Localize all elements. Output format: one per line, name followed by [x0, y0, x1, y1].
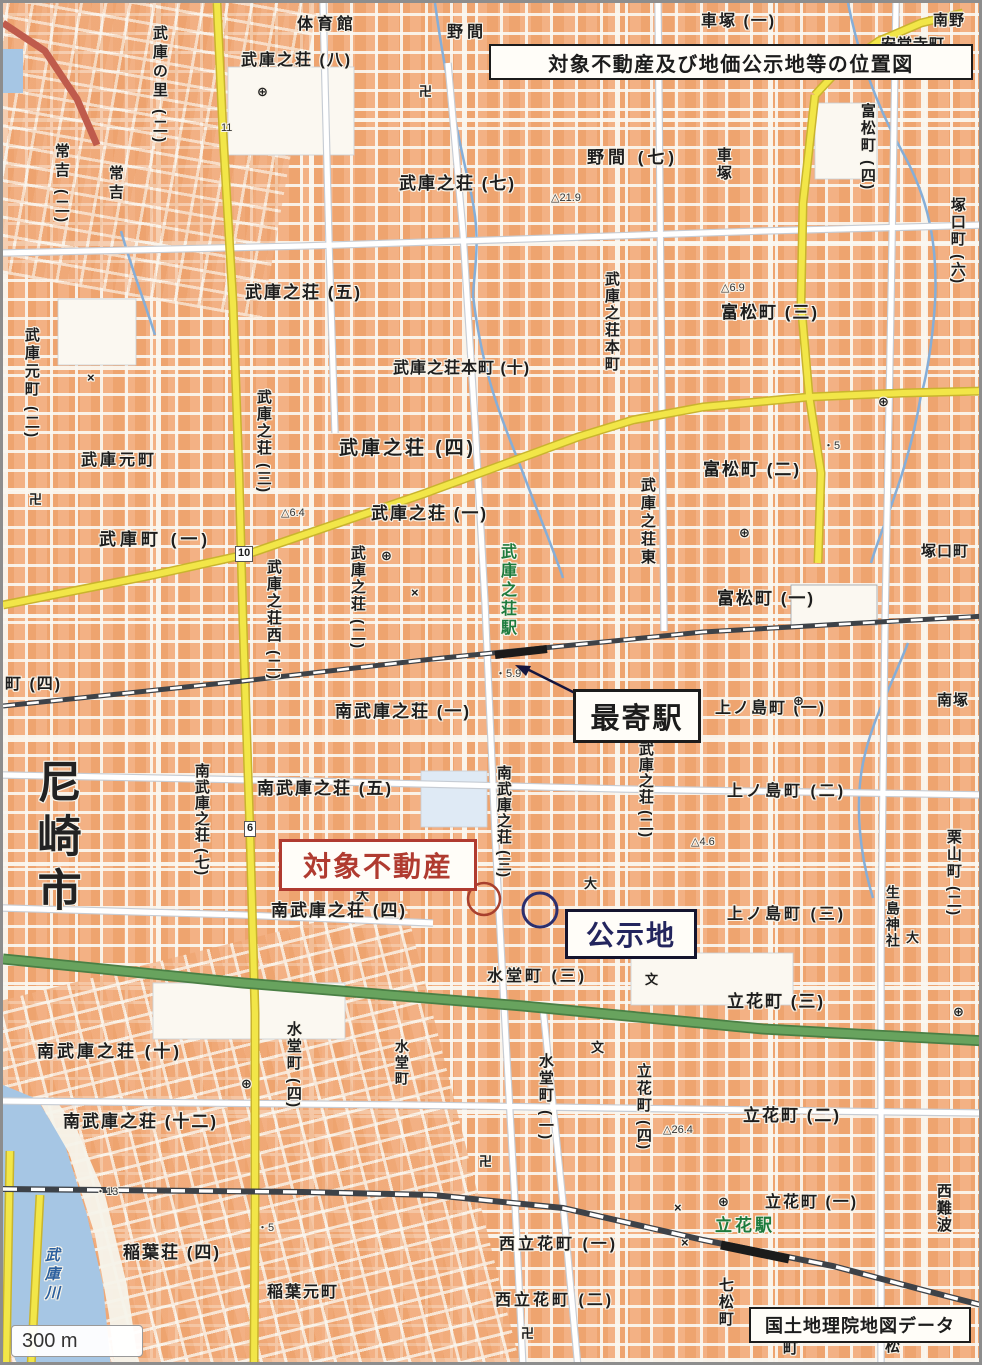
published-land-circle [523, 893, 557, 927]
published-land-price-label-box: 公示地 [565, 909, 697, 959]
scale-label: 300 m [11, 1325, 143, 1357]
nearest-station-arrow [515, 665, 581, 696]
location-map: 体育館野間武庫之荘 (八)武庫の里 (二)常吉 (二)常吉野間 (七)武庫之荘 … [0, 0, 982, 1365]
nearest-station-label-box: 最寄駅 [573, 689, 701, 743]
subject-property-label-box: 対象不動産 [279, 839, 477, 891]
title-box: 対象不動産及び地価公示地等の位置図 [489, 44, 973, 80]
appraisal-annotations [3, 3, 982, 1365]
map-credit-box: 国土地理院地図データ [749, 1307, 971, 1343]
